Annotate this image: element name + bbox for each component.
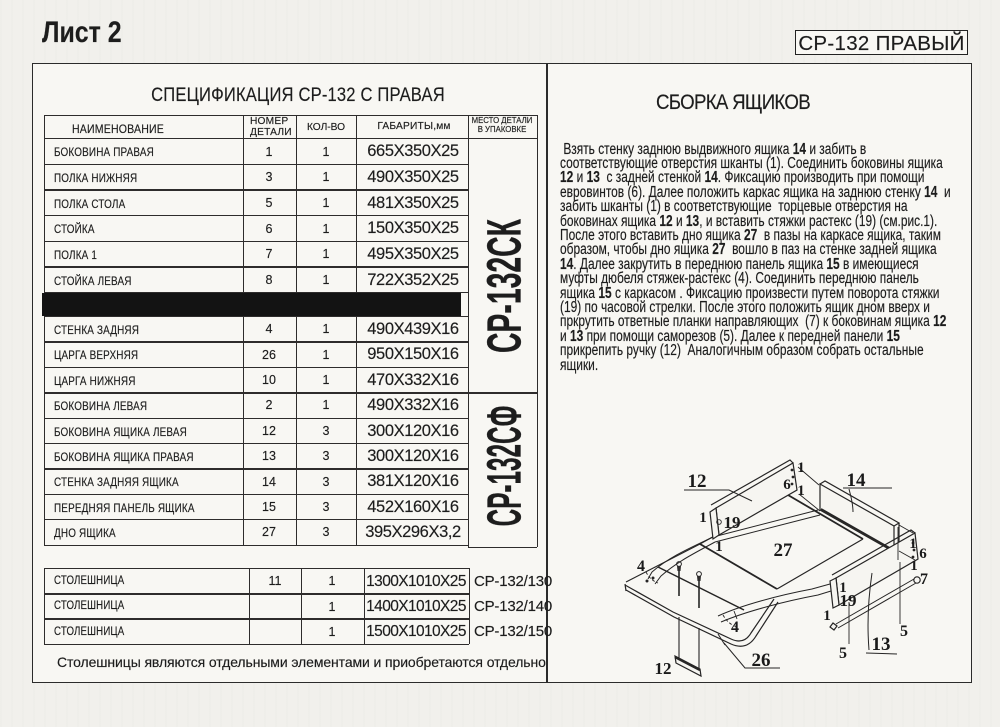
- svg-text:7: 7: [920, 571, 928, 588]
- svg-text:4: 4: [637, 558, 645, 575]
- svg-text:12: 12: [688, 471, 707, 492]
- svg-text:1: 1: [699, 510, 707, 526]
- svg-text:4: 4: [731, 619, 739, 636]
- svg-text:13: 13: [872, 634, 891, 655]
- svg-text:5: 5: [900, 623, 908, 640]
- svg-text:6: 6: [783, 477, 791, 493]
- svg-text:6: 6: [919, 546, 927, 562]
- svg-text:19: 19: [724, 513, 741, 532]
- svg-text:27: 27: [774, 540, 794, 561]
- svg-text:19: 19: [840, 591, 857, 610]
- svg-text:1: 1: [823, 608, 831, 624]
- svg-text:1: 1: [797, 460, 805, 476]
- svg-text:5: 5: [839, 645, 847, 662]
- svg-text:1: 1: [797, 483, 805, 499]
- svg-text:1: 1: [909, 536, 917, 552]
- svg-text:1: 1: [715, 539, 723, 555]
- svg-text:1: 1: [910, 558, 918, 574]
- svg-text:12: 12: [655, 659, 672, 678]
